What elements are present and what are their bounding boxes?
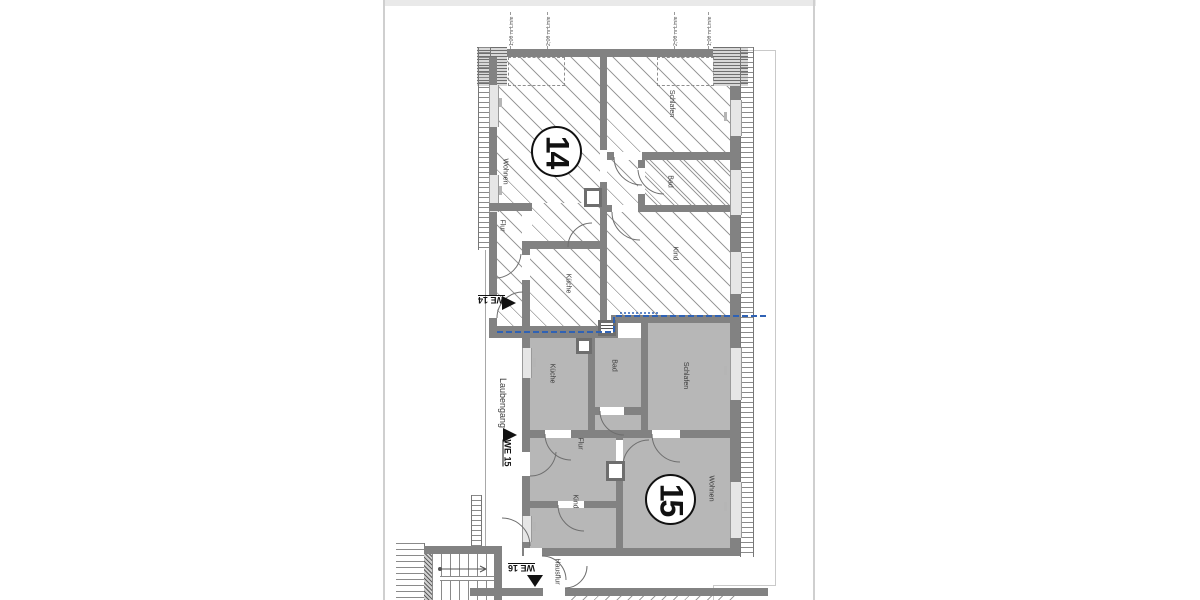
dimension-mark <box>724 366 727 375</box>
unit-number-14: 14 <box>538 136 575 168</box>
room-label-flur14: Flur <box>499 219 506 231</box>
door-arc <box>623 440 649 466</box>
room-label-bad14: Bad <box>667 175 674 187</box>
dimension-mark <box>499 186 502 195</box>
room-label-kind15: Kind <box>572 494 579 508</box>
annotation-overlay <box>0 0 1200 600</box>
entrance-arrow-we15 <box>503 428 517 442</box>
floor-plan-page: 1,00 m Linie 2,00 m Linie 2,00 m Linie 1… <box>0 0 1200 600</box>
dimension-mark <box>533 522 536 531</box>
door-arc <box>558 505 584 531</box>
dimension-mark <box>499 98 502 107</box>
room-label-flur15: Flur <box>577 437 584 449</box>
door-arc <box>565 566 587 588</box>
unit-number-15: 15 <box>652 484 689 516</box>
unit-circle-14: 14 <box>531 126 582 177</box>
room-label-schlafen15: Schlafen <box>682 362 689 389</box>
door-arc <box>612 212 640 240</box>
entrance-label-we14: WE 14 <box>478 295 505 305</box>
dimension-mark <box>724 502 727 511</box>
entrance-arrow-we14 <box>502 296 516 310</box>
entrance-arrow-we16 <box>527 575 543 587</box>
room-label-schlafen14: Schlafen <box>668 90 675 117</box>
corridor-label: Hausflur <box>554 558 561 584</box>
dimension-mark <box>724 112 727 121</box>
room-label-wohnen14: Wohnen <box>501 159 508 185</box>
room-label-kind14: Kind <box>672 246 679 260</box>
door-arc <box>600 411 624 435</box>
door-arc <box>568 223 592 247</box>
entrance-label-we16: WE 16 <box>508 563 535 573</box>
door-arc <box>502 518 530 546</box>
room-label-bad15: Bad <box>611 359 618 371</box>
door-arc <box>638 170 664 194</box>
room-label-wohnen15: Wohnen <box>707 476 714 502</box>
walkway-label: Laubengang <box>498 378 508 428</box>
room-label-kueche15: Küche <box>548 364 555 384</box>
door-arc <box>530 452 556 476</box>
door-arc <box>652 434 680 462</box>
section-line-blue <box>497 316 768 332</box>
door-arc <box>545 434 571 460</box>
entrance-label-we15: WE 15 <box>503 439 513 466</box>
unit-circle-15: 15 <box>645 474 696 525</box>
dimension-mark <box>533 358 536 367</box>
room-label-kueche14: Küche <box>564 274 571 294</box>
door-arc <box>497 254 521 278</box>
